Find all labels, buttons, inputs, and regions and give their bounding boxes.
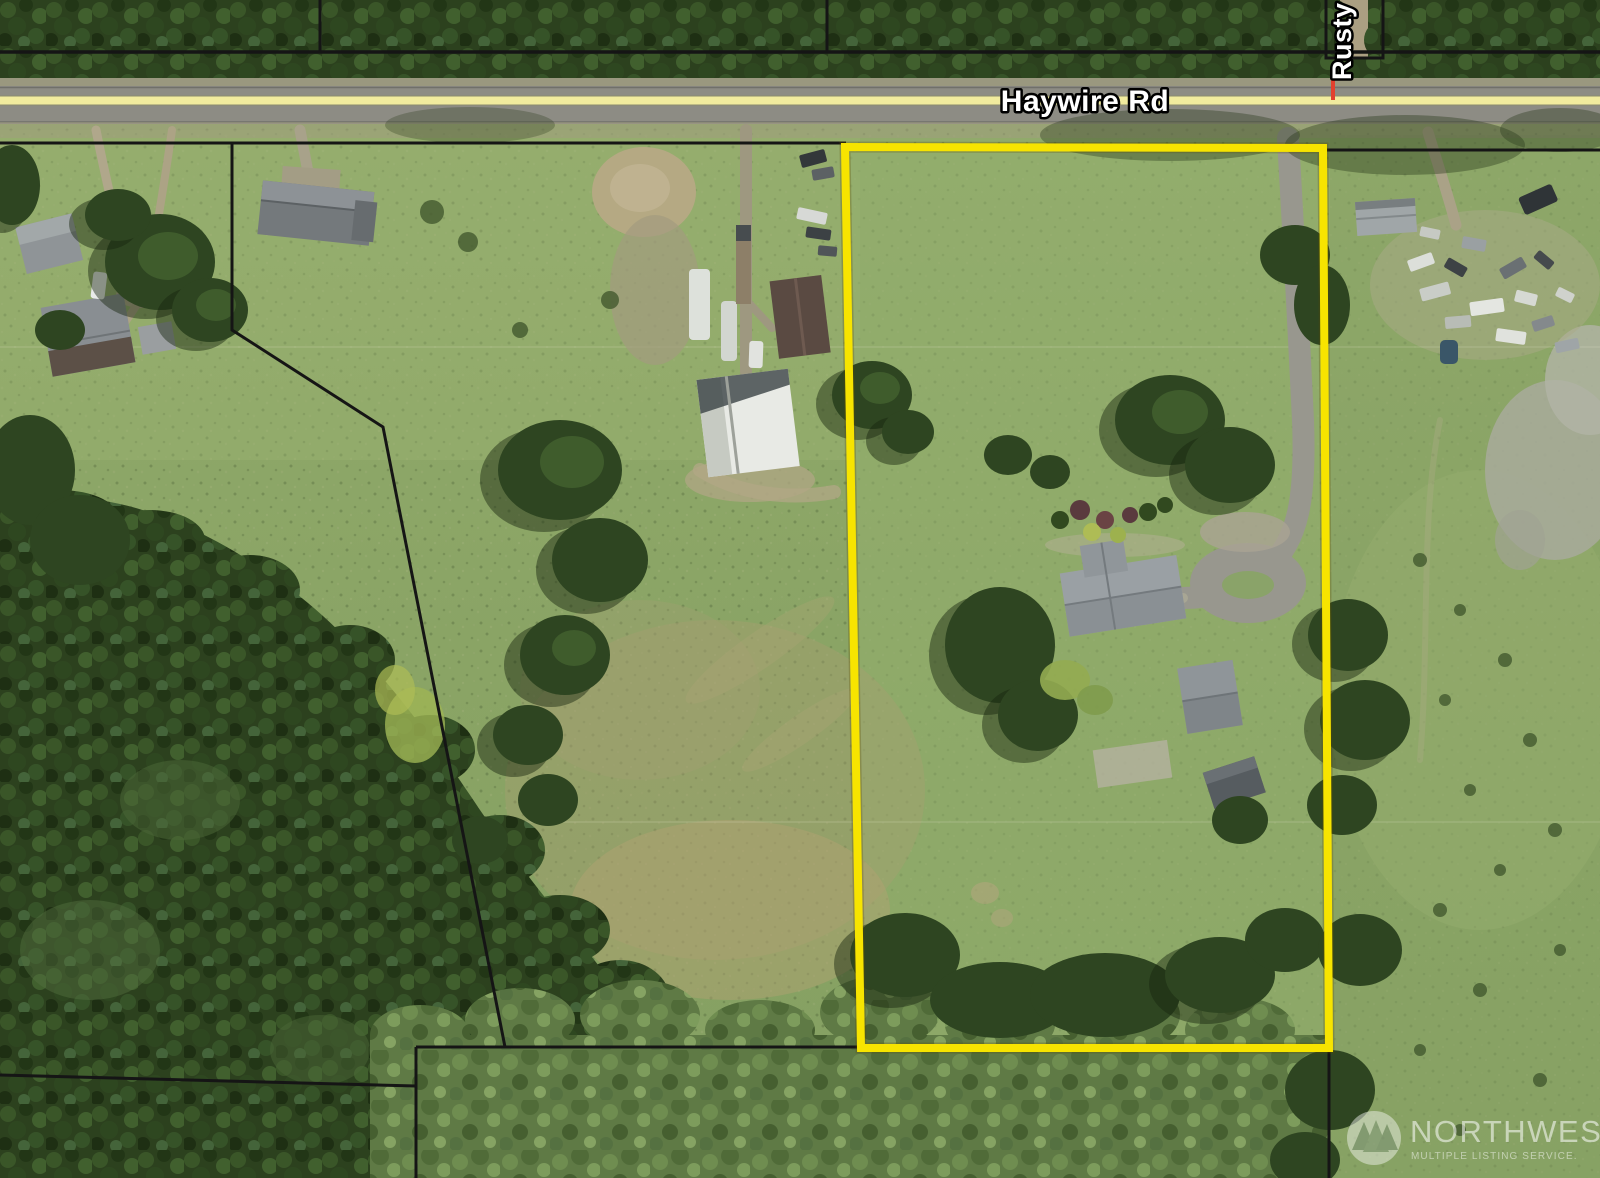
nwmls-logo-icon bbox=[1347, 1111, 1401, 1165]
rv bbox=[721, 301, 737, 361]
garage bbox=[1177, 660, 1243, 734]
aerial-parcel-map: Haywire Rd Rusty NORTHWEST MULTIPLE LIST… bbox=[0, 0, 1600, 1178]
white-van bbox=[749, 341, 764, 368]
boat bbox=[1440, 340, 1458, 364]
mls-watermark: NORTHWEST MULTIPLE LISTING SERVICE. bbox=[1347, 1111, 1600, 1165]
travel-trailer bbox=[689, 269, 710, 340]
watermark-brand: NORTHWEST bbox=[1410, 1114, 1600, 1149]
semi-trailer bbox=[736, 225, 751, 304]
road-centerline-stripe bbox=[0, 97, 1600, 105]
watermark-tagline: MULTIPLE LISTING SERVICE. bbox=[1411, 1151, 1578, 1162]
south-canopy-band bbox=[370, 1035, 1330, 1178]
east-long-building bbox=[1355, 198, 1417, 236]
road-label-rusty: Rusty bbox=[1327, 2, 1357, 80]
white-barn bbox=[696, 369, 799, 477]
brown-outbuilding bbox=[770, 275, 831, 359]
road-label-haywire: Haywire Rd bbox=[1001, 85, 1169, 118]
